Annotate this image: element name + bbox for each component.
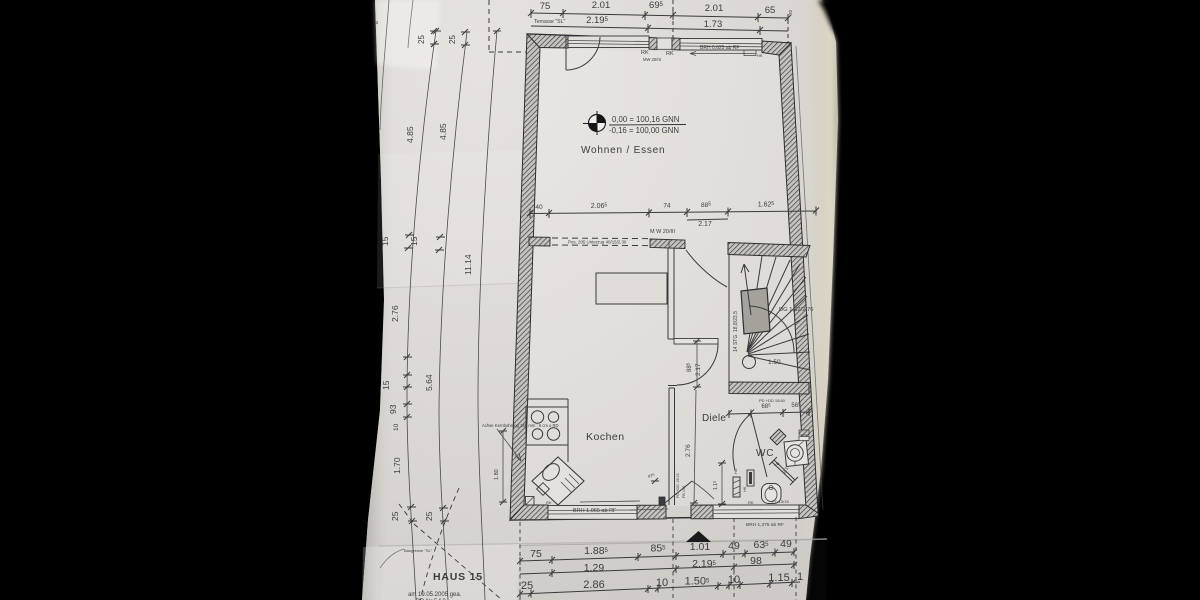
svg-text:1.15: 1.15	[768, 572, 789, 584]
svg-text:HK: HK	[742, 486, 747, 492]
svg-text:4.85: 4.85	[405, 126, 415, 143]
svg-text:10: 10	[728, 574, 740, 586]
svg-text:Baugrenze "SL": Baugrenze "SL"	[404, 548, 433, 553]
svg-text:1.70: 1.70	[392, 457, 402, 474]
svg-text:Wohnen / Essen: Wohnen / Essen	[581, 145, 665, 156]
svg-text:RK: RK	[641, 50, 649, 56]
svg-text:Kochen: Kochen	[586, 431, 625, 443]
svg-text:tz: tz	[374, 21, 379, 24]
svg-text:2.76: 2.76	[390, 305, 400, 322]
svg-text:PD +DD 15/40: PD +DD 15/40	[759, 398, 786, 403]
svg-text:1.73: 1.73	[704, 19, 723, 30]
svg-text:1.80: 1.80	[494, 469, 500, 480]
svg-text:Achse Kernbohrung 150 mm : 6 c: Achse Kernbohrung 150 mm : 6 cm u RD	[482, 423, 559, 428]
svg-text:93: 93	[388, 404, 398, 414]
svg-text:HAUS 15: HAUS 15	[433, 571, 483, 583]
svg-text:2.17: 2.17	[698, 221, 712, 228]
svg-text:WC: WC	[756, 448, 774, 459]
svg-text:25: 25	[448, 35, 457, 44]
svg-text:20: 20	[788, 10, 793, 16]
svg-text:2.86: 2.86	[583, 579, 604, 591]
svg-text:1.01: 1.01	[690, 541, 711, 553]
svg-text:Terrasse "SL": Terrasse "SL"	[534, 19, 566, 25]
svg-text:DG 1,32/2,76: DG 1,32/2,76	[779, 307, 813, 313]
svg-text:1: 1	[797, 571, 803, 583]
svg-text:1.50: 1.50	[768, 359, 781, 366]
svg-text:25: 25	[417, 35, 426, 44]
svg-text:15: 15	[380, 236, 390, 246]
svg-text:BRH 1,375 ab RF: BRH 1,375 ab RF	[746, 522, 784, 528]
svg-text:5.64: 5.64	[424, 374, 434, 391]
svg-text:75: 75	[540, 1, 551, 12]
svg-text:4.85: 4.85	[438, 123, 448, 140]
svg-text:PD +DD 15/15: PD +DD 15/15	[676, 473, 680, 498]
svg-text:74: 74	[663, 203, 671, 210]
svg-text:M W 20/III: M W 20/III	[650, 229, 676, 235]
svg-text:Diele: Diele	[702, 413, 726, 424]
svg-text:25: 25	[424, 511, 434, 521]
svg-text:11.14: 11.14	[463, 254, 473, 275]
svg-text:10: 10	[393, 423, 400, 431]
svg-text:40: 40	[535, 204, 543, 211]
svg-text:RK: RK	[748, 500, 754, 505]
svg-text:0,00 = 100,16 GNN: 0,00 = 100,16 GNN	[612, 115, 679, 124]
svg-text:MW 20/III: MW 20/III	[643, 57, 661, 62]
svg-text:RK: RK	[546, 500, 552, 505]
svg-text:HK: HK	[733, 468, 738, 474]
svg-text:10: 10	[656, 577, 668, 589]
svg-text:BRH 0,625 ab RF: BRH 0,625 ab RF	[700, 45, 739, 51]
svg-text:65: 65	[765, 5, 776, 16]
svg-text:2.01: 2.01	[592, 0, 611, 11]
svg-text:14 STG. 18,8/23,5: 14 STG. 18,8/23,5	[733, 311, 739, 352]
svg-text:RK: RK	[666, 51, 674, 57]
svg-text:49: 49	[728, 540, 740, 552]
svg-text:PD 15/15: PD 15/15	[772, 499, 789, 504]
svg-text:15: 15	[409, 236, 419, 246]
svg-text:1.29: 1.29	[584, 562, 605, 574]
svg-text:Pos. 205 Unterzug 40/15/2.30: Pos. 205 Unterzug 40/15/2.30	[568, 240, 627, 245]
svg-text:49: 49	[780, 538, 792, 550]
svg-text:98: 98	[750, 555, 762, 567]
svg-text:15: 15	[381, 380, 391, 390]
svg-text:BRH 1.065 ab RF: BRH 1.065 ab RF	[573, 508, 617, 514]
svg-text:2.01: 2.01	[705, 3, 724, 14]
svg-text:75: 75	[530, 548, 542, 560]
svg-text:2.17: 2.17	[695, 363, 702, 376]
svg-text:am 19.05.2005 gea.: am 19.05.2005 gea.	[408, 592, 462, 598]
svg-text:25: 25	[521, 580, 533, 592]
svg-text:25: 25	[390, 511, 400, 521]
svg-text:-0,16 = 100,00 GNN: -0,16 = 100,00 GNN	[609, 126, 679, 135]
svg-text:HK: HK	[757, 53, 763, 58]
svg-text:2.76: 2.76	[685, 444, 692, 457]
